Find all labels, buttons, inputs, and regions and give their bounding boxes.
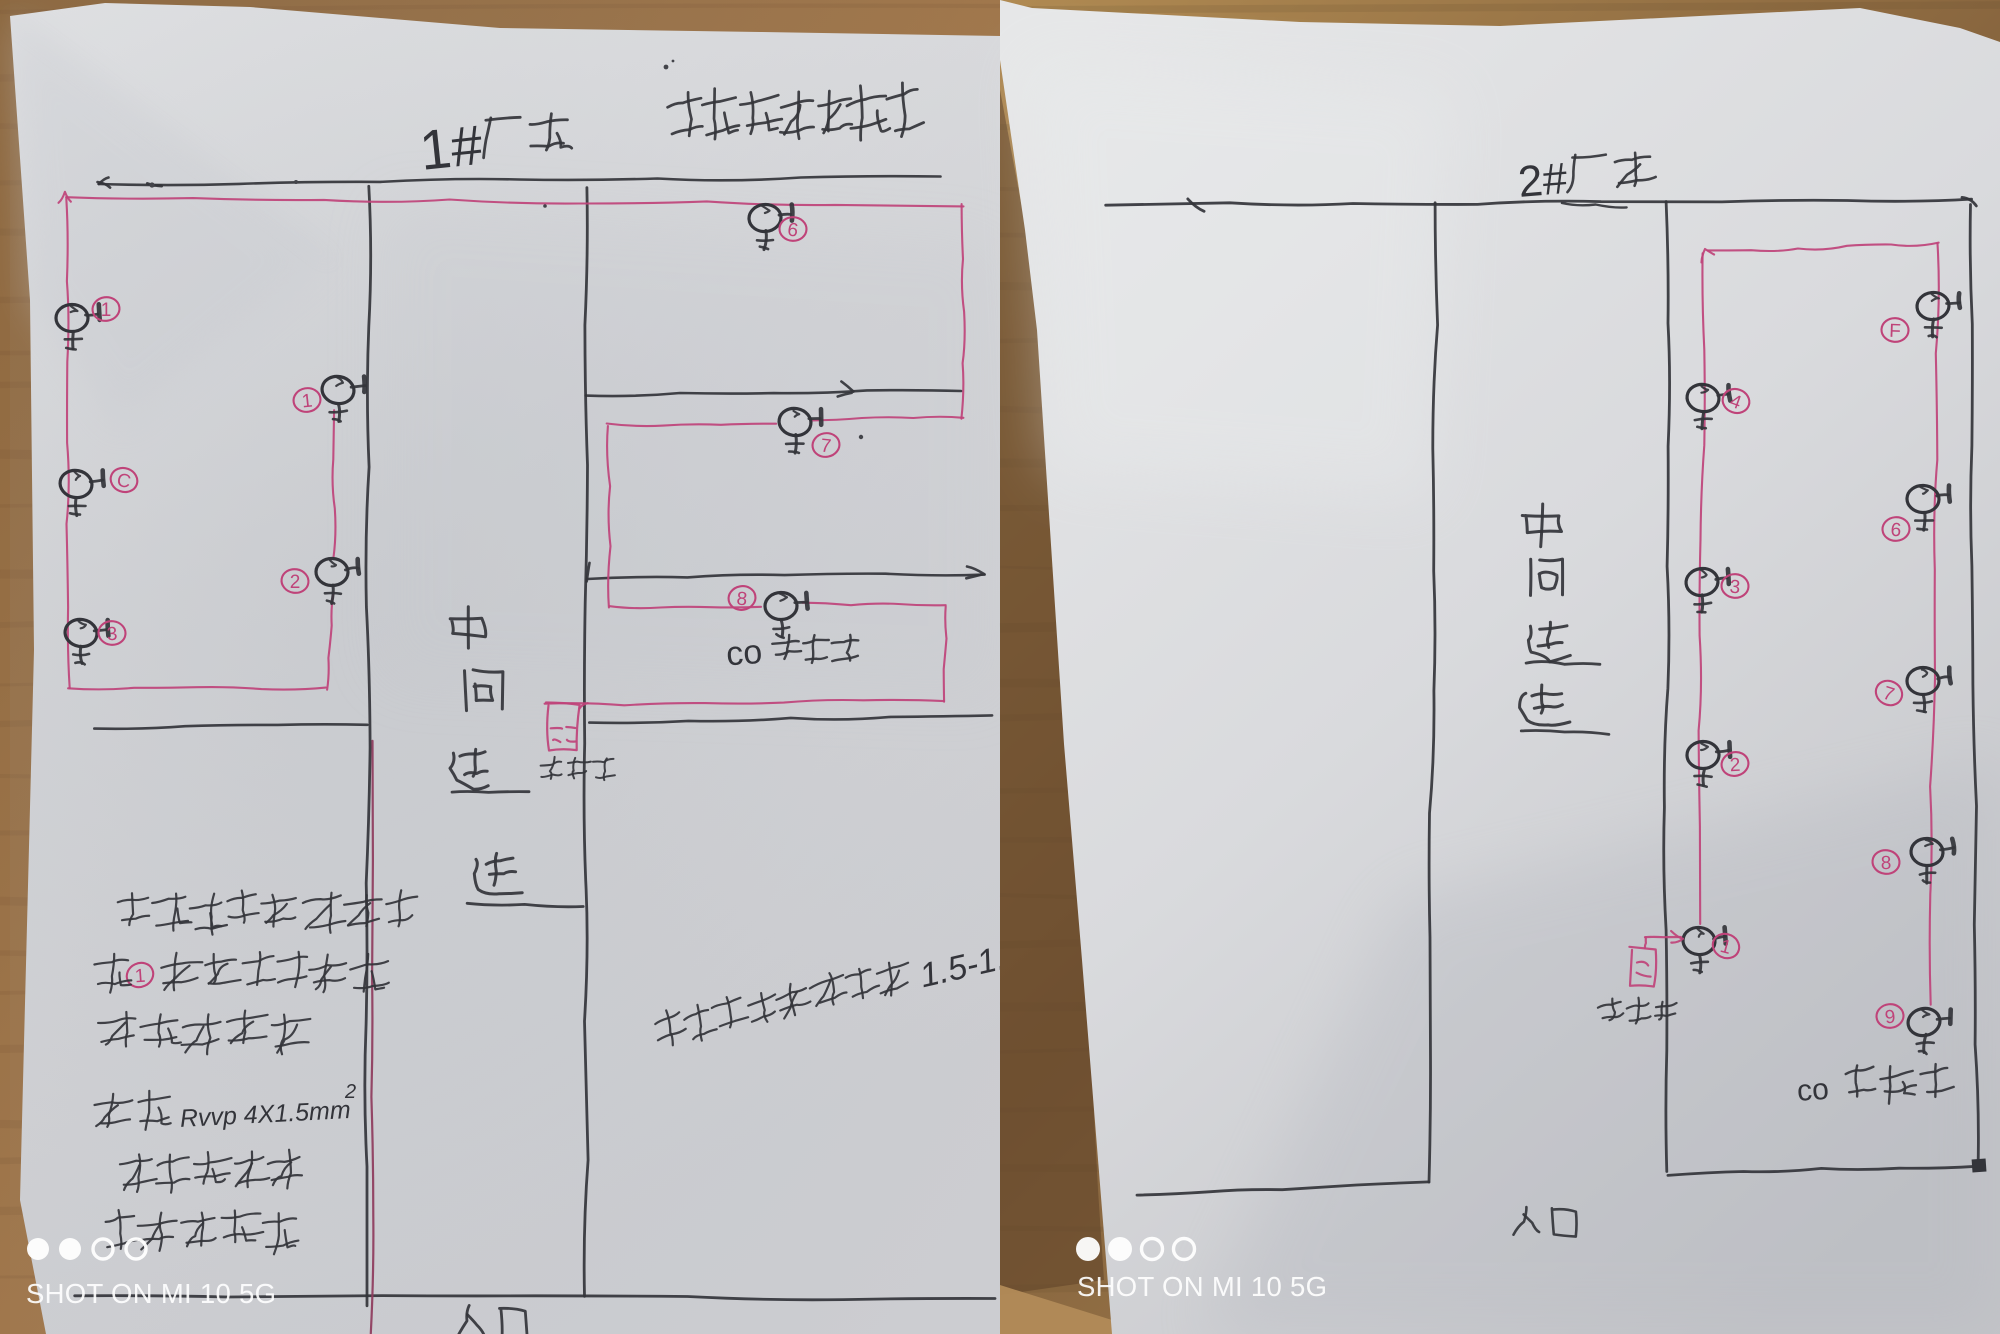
svg-text:SHOT ON MI 10 5G: SHOT ON MI 10 5G <box>1077 1271 1327 1302</box>
svg-text:2#: 2# <box>1516 154 1570 207</box>
svg-text:7: 7 <box>819 435 832 457</box>
svg-text:1: 1 <box>301 390 314 412</box>
svg-text:1#: 1# <box>417 113 486 182</box>
svg-text:9: 9 <box>1884 1006 1897 1028</box>
svg-text:2: 2 <box>290 572 301 593</box>
svg-text:2: 2 <box>1729 755 1741 777</box>
svg-text:6: 6 <box>1890 520 1902 542</box>
svg-text:co: co <box>725 633 763 673</box>
svg-text:3: 3 <box>106 624 118 646</box>
svg-text:1: 1 <box>134 966 146 988</box>
svg-text:8: 8 <box>1881 853 1892 874</box>
svg-text:SHOT ON MI 10 5G: SHOT ON MI 10 5G <box>26 1278 276 1309</box>
svg-text:1: 1 <box>101 300 112 321</box>
svg-text:3: 3 <box>1729 577 1741 599</box>
svg-text:F: F <box>1889 321 1901 342</box>
svg-text:2: 2 <box>344 1081 356 1103</box>
svg-text:co: co <box>1796 1073 1830 1108</box>
svg-text:8: 8 <box>736 589 748 611</box>
